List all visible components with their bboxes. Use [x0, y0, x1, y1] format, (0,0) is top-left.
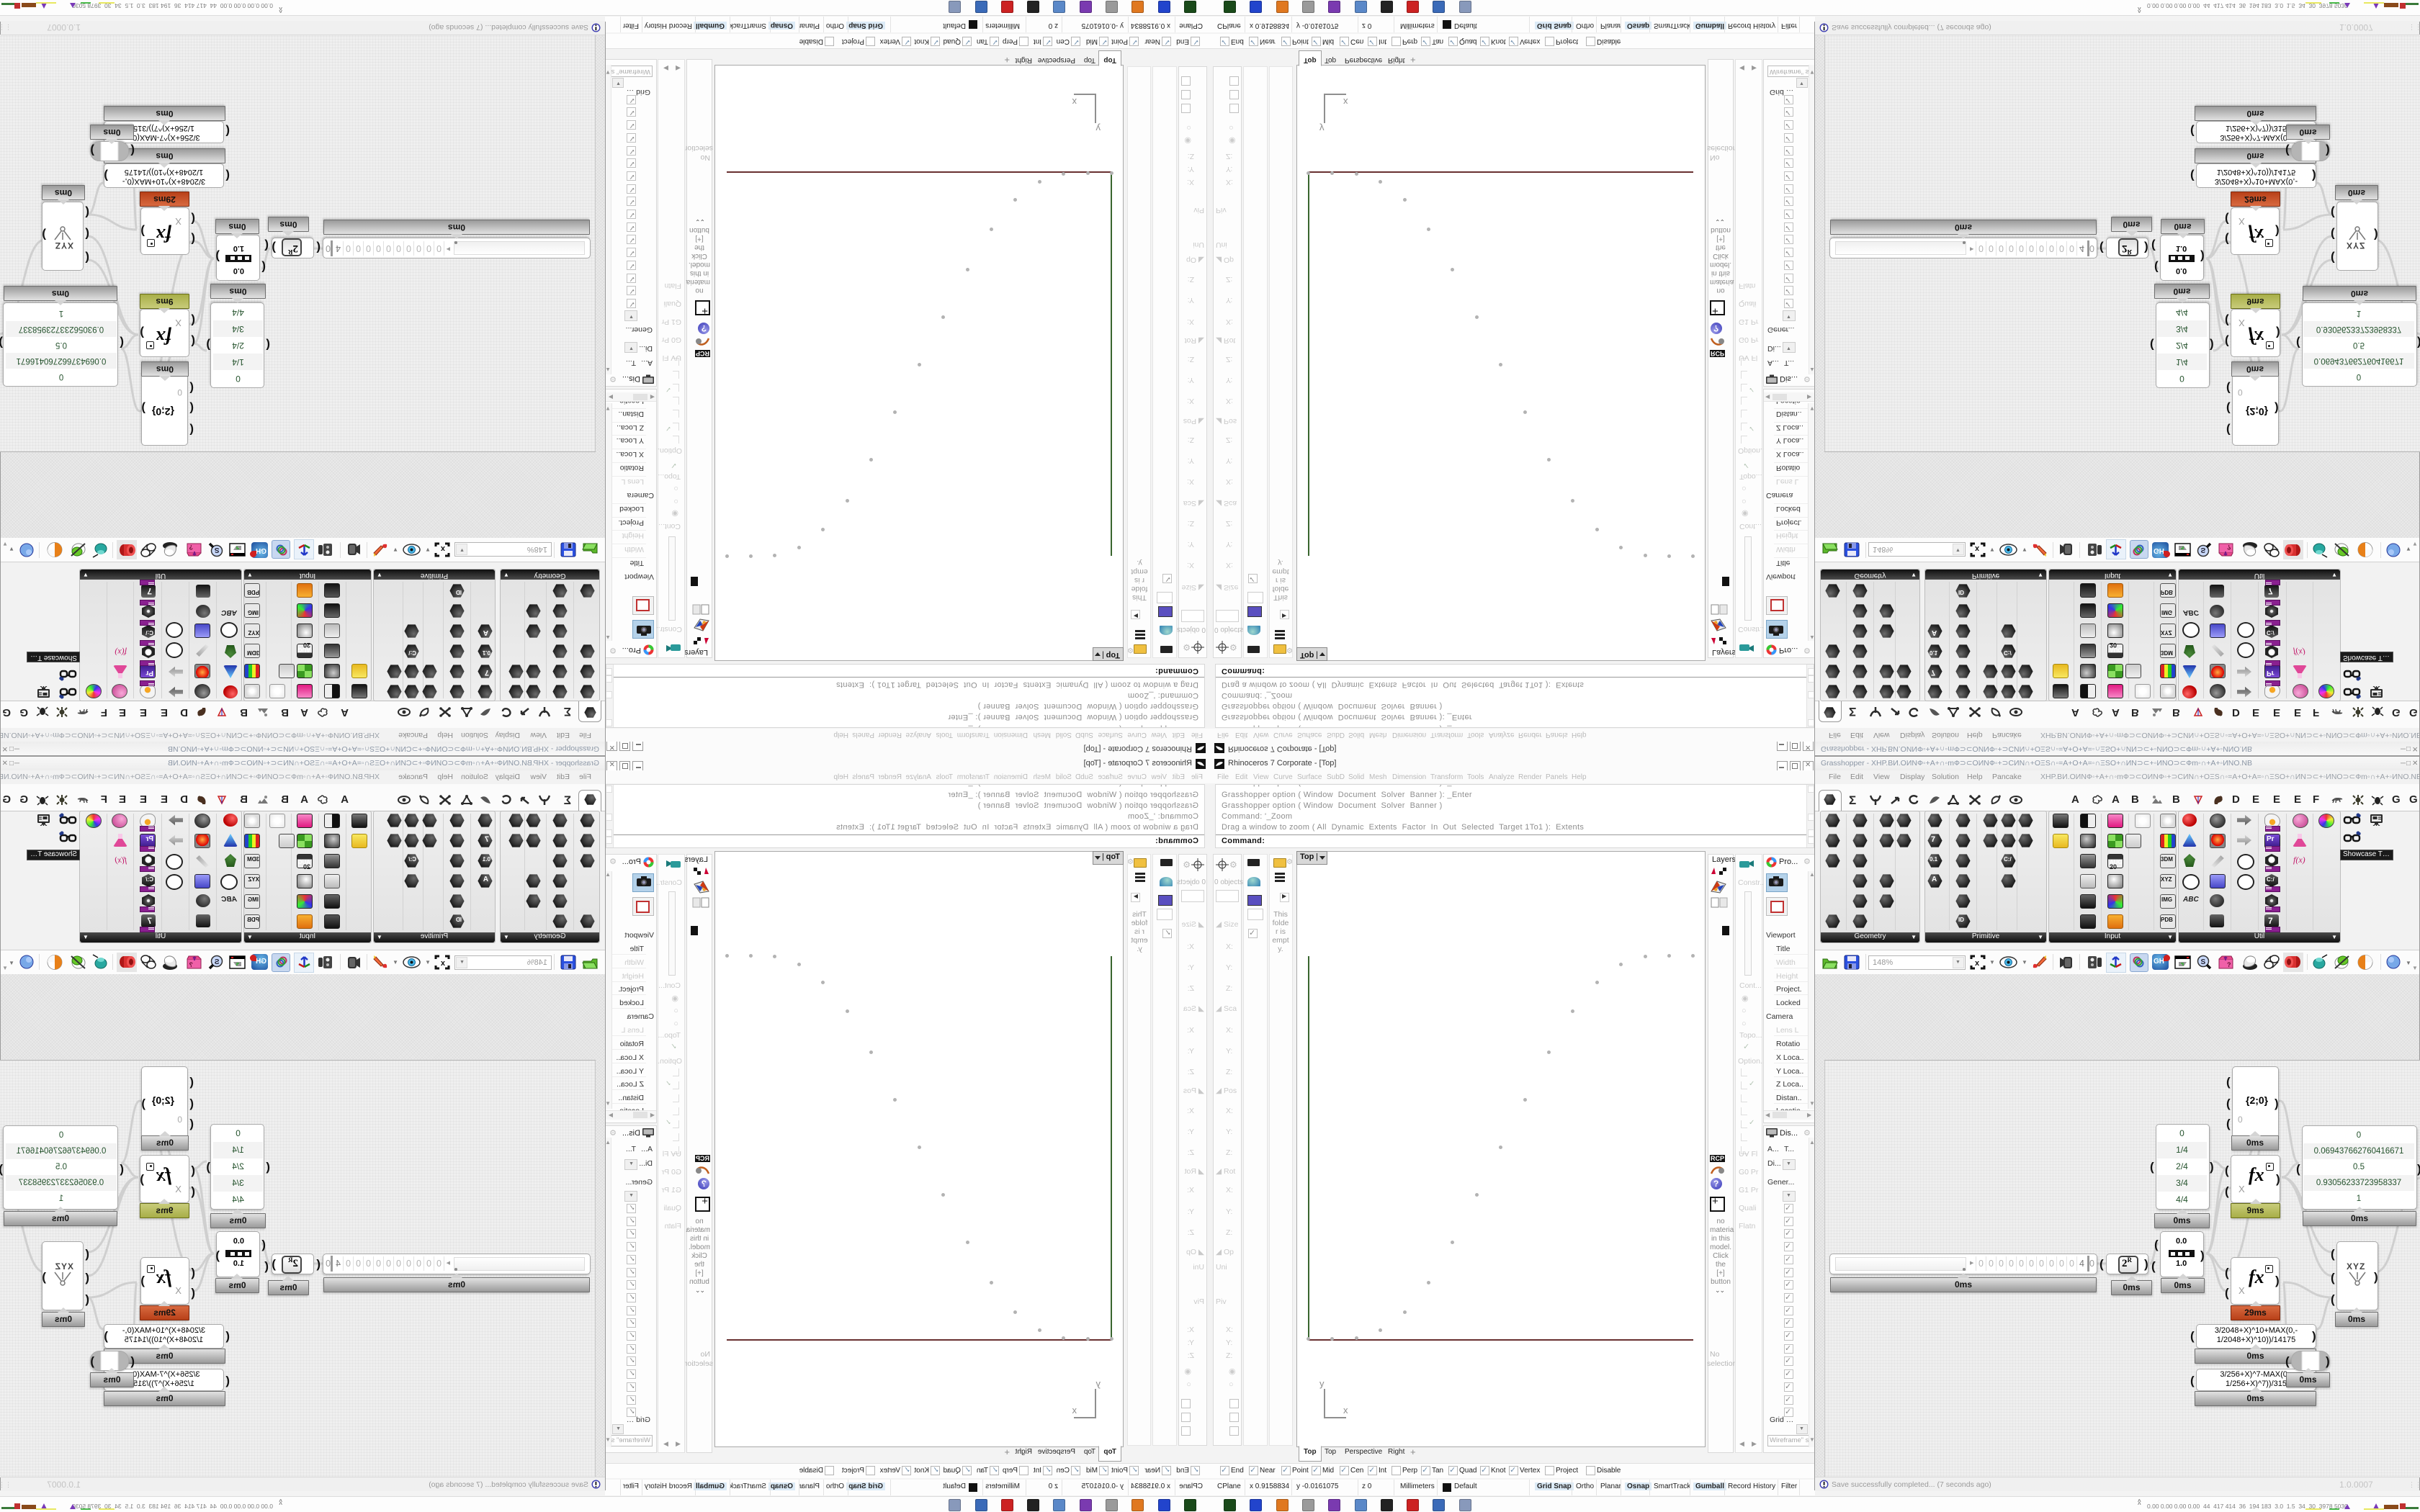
svg-text:Σ: Σ: [1849, 794, 1856, 806]
svg-text:?: ?: [2227, 961, 2231, 968]
svg-text:x: x: [440, 544, 445, 553]
svg-text:S: S: [215, 546, 220, 554]
svg-text:S: S: [215, 958, 220, 966]
svg-text:?: ?: [189, 961, 194, 968]
svg-text:Σ: Σ: [564, 706, 571, 718]
svg-text:x: x: [1975, 959, 1980, 968]
svg-text:?: ?: [2227, 544, 2231, 551]
svg-text:S: S: [2201, 546, 2206, 554]
svg-text:Σ: Σ: [564, 794, 571, 806]
svg-text:?: ?: [189, 544, 194, 551]
svg-text:Σ: Σ: [1849, 706, 1856, 718]
svg-text:x: x: [1975, 544, 1980, 553]
svg-text:x: x: [440, 959, 445, 968]
svg-text:S: S: [2201, 958, 2206, 966]
